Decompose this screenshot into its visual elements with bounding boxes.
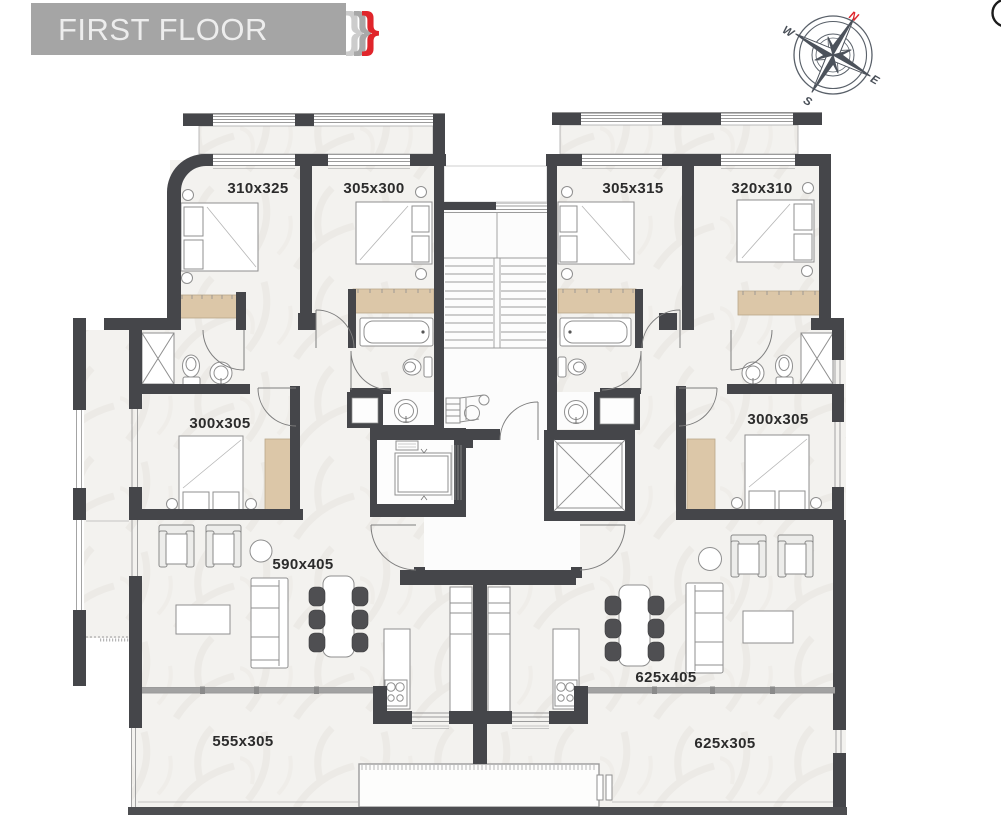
- svg-text:320x310: 320x310: [731, 180, 792, 197]
- svg-text:590x405: 590x405: [272, 556, 333, 573]
- svg-text:}: }: [361, 4, 380, 57]
- svg-text:N: N: [847, 10, 861, 25]
- svg-text:S: S: [801, 95, 814, 109]
- svg-text:625x305: 625x305: [694, 735, 755, 752]
- svg-text:300x305: 300x305: [189, 415, 250, 432]
- svg-text:W: W: [780, 24, 796, 40]
- svg-text:FIRST FLOOR: FIRST FLOOR: [58, 12, 268, 47]
- svg-text:310x325: 310x325: [227, 180, 288, 197]
- svg-text:555x305: 555x305: [212, 733, 273, 750]
- svg-text:625x405: 625x405: [635, 669, 696, 686]
- svg-text:305x315: 305x315: [602, 180, 663, 197]
- svg-text:305x300: 305x300: [343, 180, 404, 197]
- svg-text:300x305: 300x305: [747, 411, 808, 428]
